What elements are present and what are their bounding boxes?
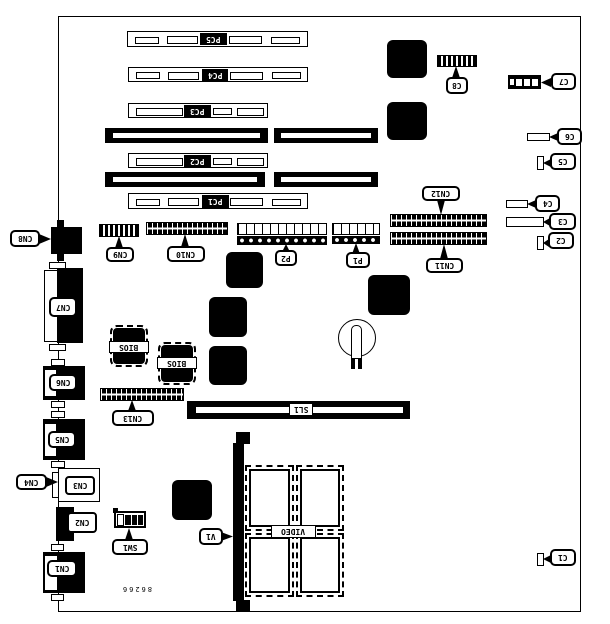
video-ram-chip: [249, 537, 290, 593]
isa-slot: [105, 128, 268, 143]
label-cn2: CN2: [67, 512, 97, 533]
slot-segment: [230, 72, 263, 80]
slot-segment: [271, 37, 300, 44]
label-v1: V1: [199, 528, 223, 545]
video-ram-chip: [249, 469, 290, 527]
isa-slot-stripe: [281, 133, 371, 138]
capacitor-c5: [537, 156, 544, 170]
label-cn7: CN7: [49, 297, 77, 317]
label-c7: C7: [551, 73, 576, 90]
label-cn9: CN9: [106, 247, 134, 262]
connector-cn12: [390, 214, 487, 227]
slot-segment: [230, 198, 263, 206]
connector-c8: [437, 55, 477, 67]
dip-switch-pos: [125, 515, 130, 525]
label-cn13: CN13: [112, 410, 154, 426]
label-c1: C1: [550, 549, 576, 566]
isa-slot: [105, 172, 265, 187]
slot-segment: [213, 108, 232, 115]
capacitor-c3: [506, 217, 544, 227]
label-cn4: CN4: [16, 474, 47, 490]
connector-cn8: [51, 227, 82, 254]
label-cn1: CN1: [47, 560, 77, 577]
slot-v1: [233, 443, 244, 601]
isa-slot-stripe: [113, 177, 257, 182]
slot-segment: [168, 72, 199, 80]
isa-slot-segment: [274, 128, 378, 143]
capacitor-c1: [537, 553, 544, 566]
label-p2: P2: [275, 250, 297, 266]
label-cn6: CN6: [49, 374, 77, 391]
c7-cell: [516, 79, 522, 86]
header-p2-pins: [237, 223, 327, 235]
label-c6: C6: [557, 128, 582, 145]
capacitor-c6: [527, 133, 550, 141]
label-video: VIDEO: [271, 525, 316, 538]
edge-tab: [49, 344, 66, 351]
edge-tab: [57, 254, 64, 261]
battery-body: [351, 325, 362, 359]
slot-segment: [272, 72, 301, 79]
label-sw1: SW1: [112, 539, 148, 555]
connector-c7: [508, 75, 541, 89]
ic-chip: [368, 275, 410, 315]
edge-tab: [51, 461, 65, 468]
label-c5: C5: [550, 153, 576, 170]
cn8-pointer: [39, 234, 51, 244]
ic-chip: [172, 480, 212, 520]
slot-segment: [272, 199, 301, 206]
edge-tab: [51, 544, 64, 551]
slot-v1-cap-bottom: [236, 600, 250, 612]
slot-segment: [237, 158, 264, 166]
bios-chip-label: BIOS: [109, 341, 149, 353]
video-ram-chip: [300, 537, 340, 593]
slot-segment: [136, 199, 160, 206]
capacitor-c2: [537, 236, 544, 250]
slot-segment: [135, 37, 159, 44]
c7-cell: [532, 79, 538, 86]
header-p1-contacts: [332, 236, 380, 244]
ic-chip: [226, 252, 263, 288]
isa-slot-stripe: [113, 133, 260, 138]
slot-segment: [168, 198, 199, 206]
dip-switch-pos: [132, 515, 137, 525]
slot-label-sl1: SL1: [289, 403, 313, 416]
edge-tab: [51, 401, 65, 408]
board-part-number: 86266: [108, 585, 152, 595]
c7-cell: [510, 79, 514, 85]
label-cn12: CN12: [422, 186, 460, 201]
connector-cn11: [390, 232, 487, 245]
slot-label-pc5: PC5: [200, 33, 227, 45]
slot-label-pc4: PC4: [202, 69, 228, 81]
ic-chip: [387, 40, 427, 78]
connector-cn10: [146, 222, 228, 235]
isa-slot-stripe: [281, 177, 371, 182]
capacitor-c4: [506, 200, 528, 208]
slot-segment: [136, 108, 183, 116]
label-c8: C8: [446, 77, 468, 94]
header-p2-contacts: [237, 236, 327, 245]
slot-segment: [237, 108, 264, 116]
slot-label-pc3: PC3: [184, 105, 211, 117]
slot-segment: [229, 36, 262, 44]
bios-chip-label: BIOS: [157, 357, 197, 369]
isa-slot-segment: [274, 172, 378, 187]
ic-chip: [387, 102, 427, 140]
label-cn8: CN8: [10, 230, 40, 247]
edge-tab: [51, 411, 65, 418]
connector-cn13: [100, 388, 184, 401]
slot-label-pc1: PC1: [202, 195, 229, 208]
slot-segment: [136, 72, 160, 79]
label-p1: P1: [346, 252, 370, 268]
dip-switch-sw1: [114, 511, 146, 528]
dip-switch-pos: [138, 515, 143, 525]
connector-cn9: [99, 224, 139, 237]
label-c4: C4: [535, 195, 560, 212]
label-c2: C2: [548, 232, 574, 249]
label-cn10: CN10: [167, 246, 205, 262]
label-cn5: CN5: [48, 431, 76, 448]
ic-chip: [209, 297, 247, 337]
slot-label-pc2: PC2: [184, 155, 211, 167]
label-cn11: CN11: [426, 258, 463, 273]
slot-segment: [213, 158, 232, 165]
slot-segment: [136, 158, 183, 166]
label-cn3: CN3: [65, 476, 95, 495]
video-ram-chip: [300, 469, 340, 527]
dip-switch-pos: [117, 514, 124, 526]
c7-cell: [524, 79, 530, 86]
ic-chip: [209, 346, 247, 385]
label-c3: C3: [549, 213, 576, 230]
edge-tab: [51, 594, 64, 601]
header-p1-pins: [332, 223, 380, 235]
slot-segment: [167, 36, 198, 44]
edge-tab: [51, 359, 65, 366]
